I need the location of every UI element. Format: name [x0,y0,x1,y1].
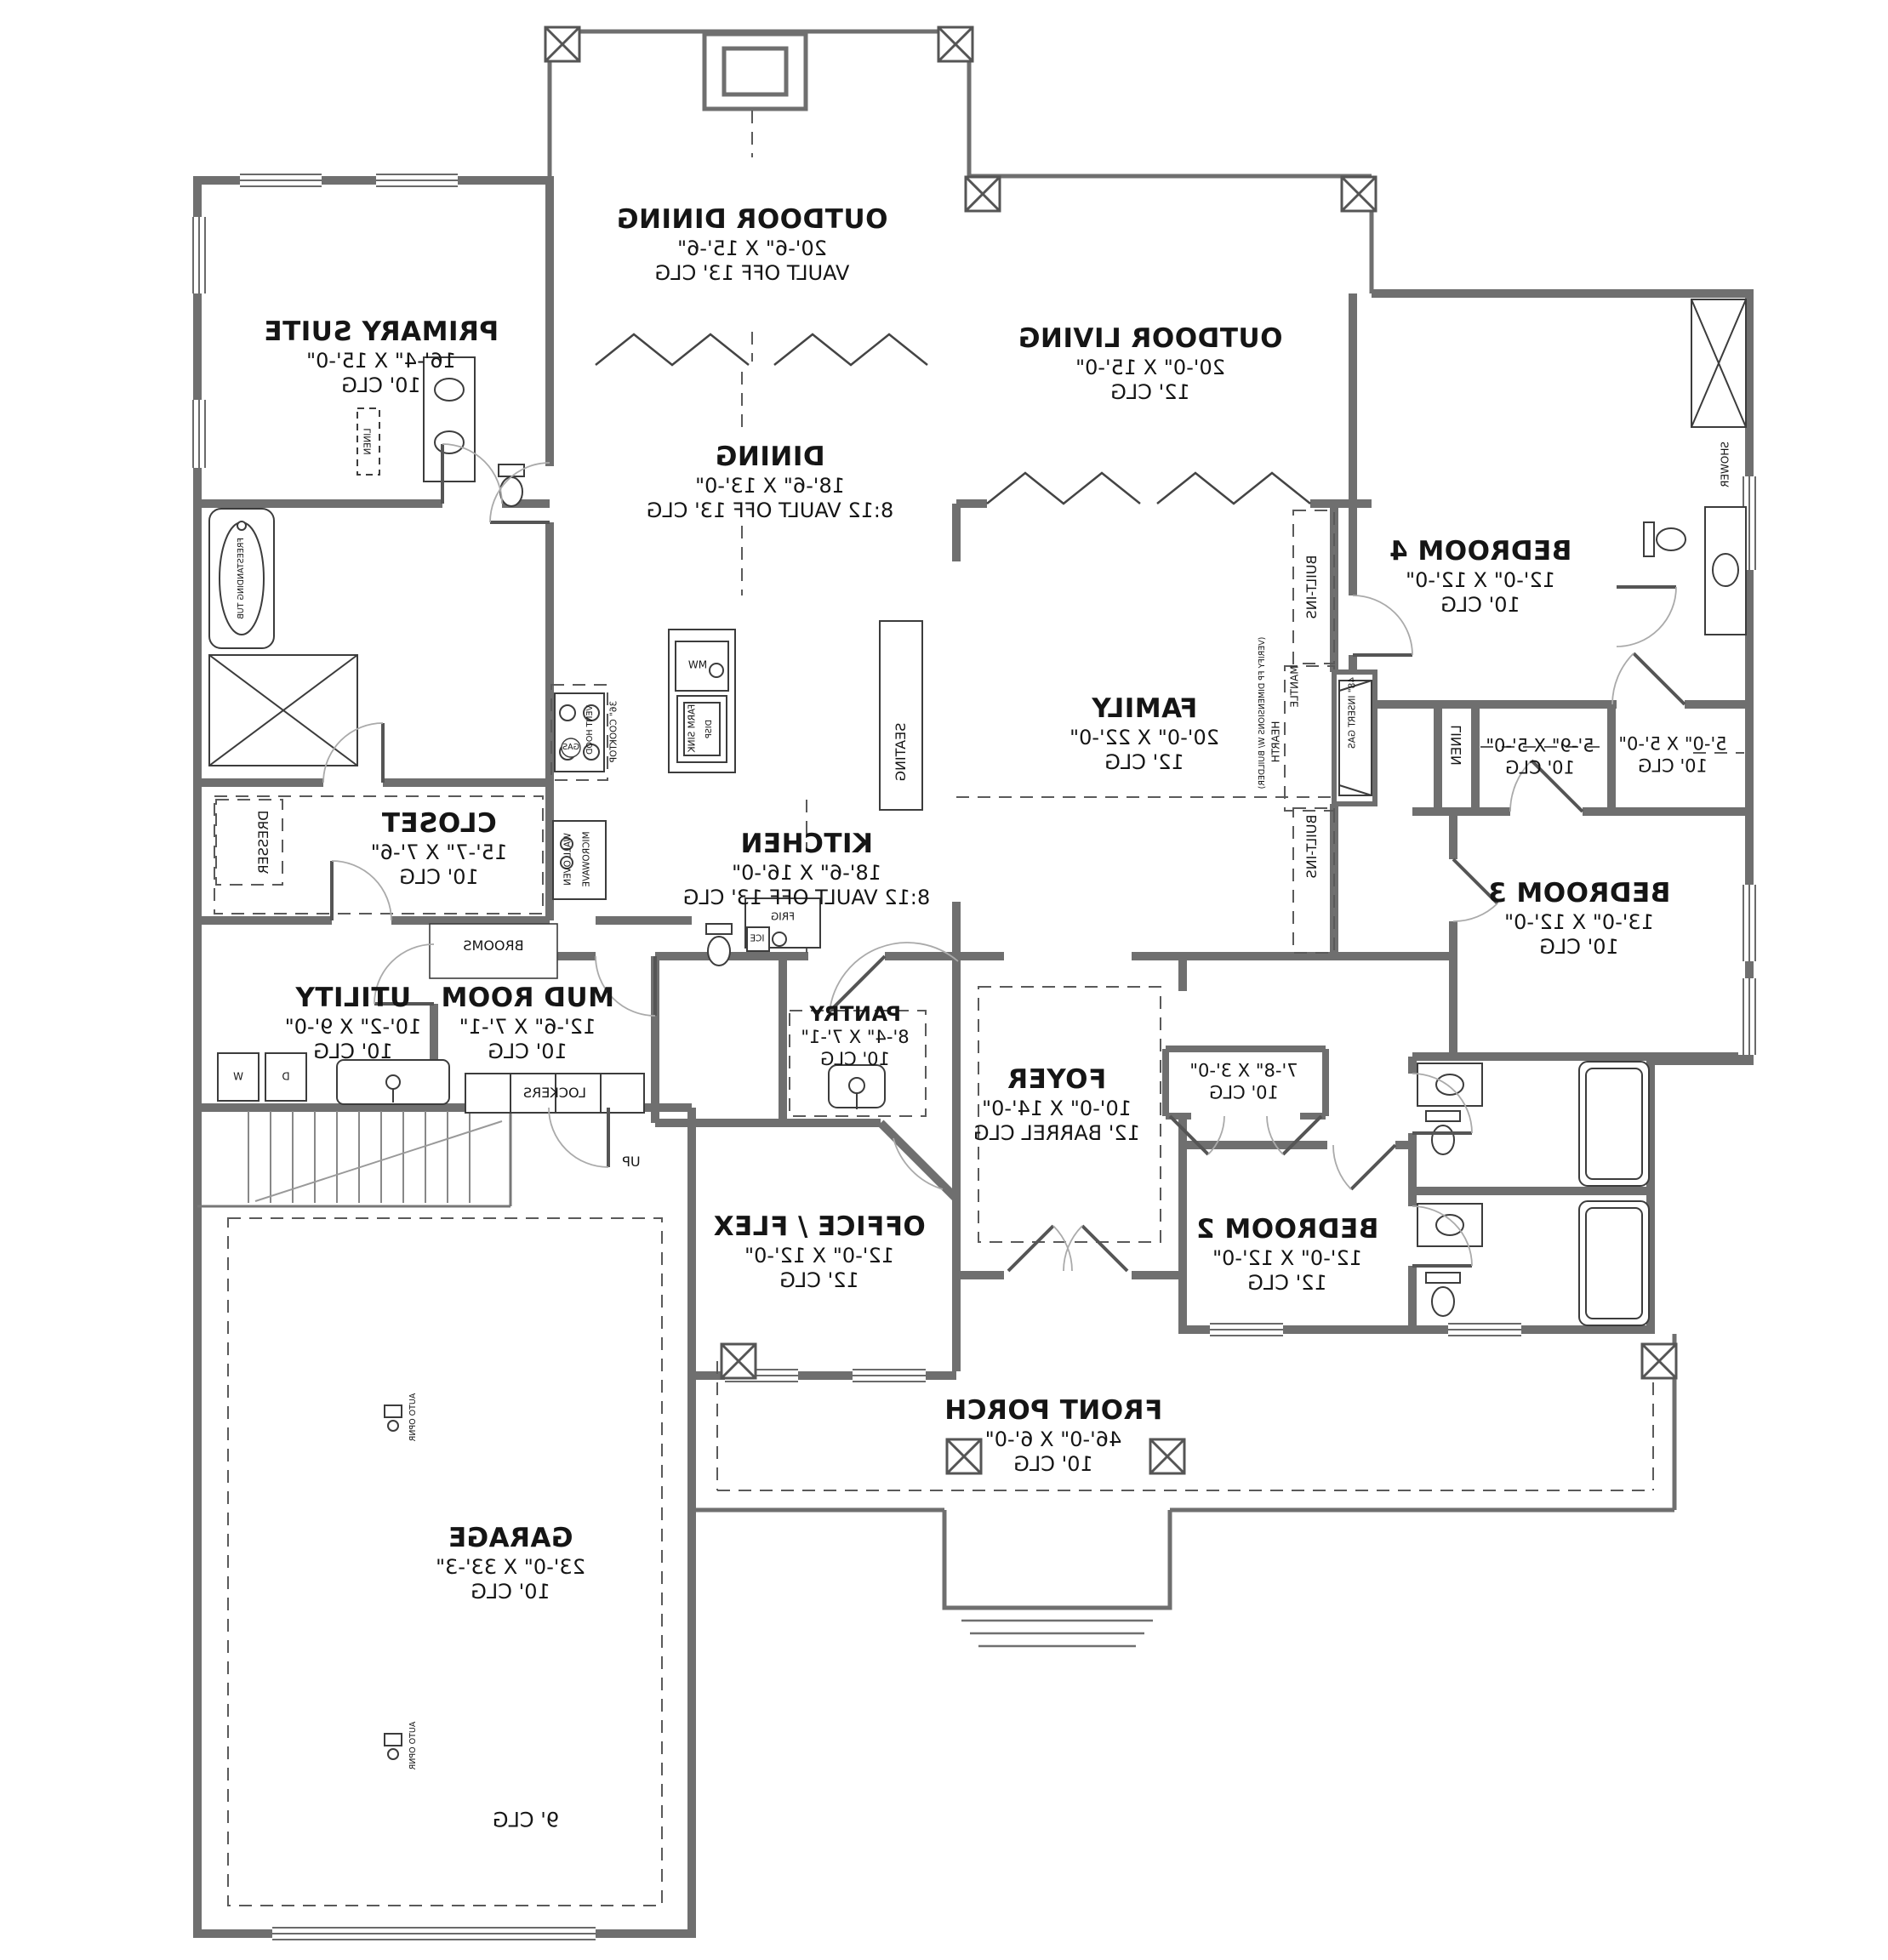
room-clg: 10' CLG [371,865,508,890]
room-dims: 8'-4" X 7'-1" [801,1027,909,1049]
room-clg: 10' CLG [264,373,499,398]
microwave-label: MICROWAVE [582,831,593,886]
farm-sink-label: FARM SINK [687,704,699,752]
linen-label: LINEN [1448,725,1465,766]
stairs-up-label: UP [622,1154,640,1171]
room-name: OUTDOOR LIVING [1018,323,1283,356]
room-label-bedroom-2: BEDROOM 2 12'-0" X 12'-0" 12' CLG [1196,1214,1379,1296]
auto-opener-label: AUTO OPNR [408,1722,419,1770]
freestanding-tub-label: FREESTANDING TUB [237,538,247,619]
vent-hood-label: VENT HOOD [585,705,596,755]
closet-dims: 7'-8" X 3'-0" [1189,1060,1298,1082]
closet-clg: 10' CLG [1486,757,1594,779]
room-clg: 12' CLG [1196,1271,1379,1296]
fp-insert-label: 48" INSERT GAS [1348,677,1359,749]
room-name: OFFICE / FLEX [713,1211,926,1244]
room-dims: 15'-7" X 7'-6" [371,840,508,865]
built-ins-label: BUILT-INS [1303,555,1320,618]
room-name: KITCHEN [683,829,930,861]
stairs [197,1108,511,1206]
closet-dims: 5'-0" X 5'-0" [1618,733,1726,755]
room-dims: 12'-0" X 12'-0" [713,1244,926,1268]
room-dims: 10'-2" X 9'-0" [285,1015,422,1040]
room-dims: 12'-6" X 7'-1" [441,1015,614,1040]
room-label-kitchen: KITCHEN 18'-6" X 16'-0" 8:12 VAULT OFF 1… [683,829,930,910]
room-label-family: FAMILY 20'-0" X 22'-0" 12' CLG [1069,693,1219,775]
room-name: PRIMARY SUITE [264,316,499,349]
shower-label: SHOWER [1720,442,1732,487]
room-clg: 10' CLG [801,1049,909,1071]
room-name: FAMILY [1069,693,1219,726]
room-label-outdoor-living: OUTDOOR LIVING 20'-0" X 15'-0" 12' CLG [1018,323,1283,405]
room-label-pantry: PANTRY 8'-4" X 7'-1" 10' CLG [801,1002,909,1070]
closet-clg: 10' CLG [1618,755,1726,778]
room-clg: 10' CLG [441,1040,614,1064]
gas-label: GAS [562,743,579,753]
cooktop-label: 36" COOKTOP [609,701,620,762]
room-clg: 8:12 VAULT OFF 13' CLG [647,499,893,523]
room-clg: 12' BARREL CLG [973,1121,1140,1146]
room-clg: 10' CLG [1389,593,1572,618]
room-name: GARAGE [436,1523,585,1555]
room-label-primary-suite: PRIMARY SUITE 16'-4" X 15'-0" 10' CLG [264,316,499,398]
room-clg: VAULT OFF 13' CLG [617,261,888,286]
room-name: OUTDOOR DINING [617,204,888,236]
closet-dims: 5'-9" X 5'-0" [1486,735,1594,757]
garage-rear-ceiling-label: 9' CLG [493,1808,559,1832]
room-name: PANTRY [801,1002,909,1027]
room-label-bedroom-3: BEDROOM 3 13'-0" X 12'-0" 10' CLG [1488,878,1671,960]
room-label-dining: DINING 18'-6" X 13'-0" 8:12 VAULT OFF 13… [647,442,893,523]
room-clg: 10' CLG [1488,935,1671,960]
room-label-bedroom-4: BEDROOM 4 12'-0" X 12'-0" 10' CLG [1389,536,1572,618]
room-clg: 10' CLG [944,1452,1162,1477]
room-label-office-flex: OFFICE / FLEX 12'-0" X 12'-0" 12' CLG [713,1211,926,1293]
room-clg: 12' CLG [1018,380,1283,405]
room-name: BEDROOM 3 [1488,878,1671,910]
room-name: FOYER [973,1064,1140,1097]
dresser-label: DRESSER [255,810,272,874]
room-clg: 12' CLG [1069,750,1219,775]
wall-oven-label: WALL OVEN [563,833,574,886]
room-clg: 10' CLG [285,1040,422,1064]
room-name: DINING [647,442,893,474]
room-dims: 12'-0" X 12'-0" [1389,568,1572,593]
dryer-label: D [282,1071,289,1084]
microwave-drawer-label: MW [688,659,707,672]
floor-plan-drawing [0,0,1888,1960]
room-label-utility: UTILITY 10'-2" X 9'-0" 10' CLG [285,983,422,1064]
hearth-label: HEARTH [1270,721,1283,763]
room-dims: 20'-6" X 15'-6" [617,236,888,261]
room-label-garage: GARAGE 23'-0" X 33'-3" 10' CLG [436,1523,585,1604]
floor-plan: PRIMARY SUITE 16'-4" X 15'-0" 10' CLG OU… [0,0,1888,1960]
room-label-mud-room: MUD ROOM 12'-6" X 7'-1" 10' CLG [441,983,614,1064]
room-dims: 12'-0" X 12'-0" [1196,1246,1379,1271]
fridge-label: FRIG [771,911,795,924]
room-label-outdoor-dining: OUTDOOR DINING 20'-6" X 15'-6" VAULT OFF… [617,204,888,286]
room-dims: 16'-4" X 15'-0" [264,349,499,373]
room-dims: 46'-0" X 6'-0" [944,1427,1162,1452]
brooms-label: BROOMS [463,937,523,954]
seating-label: SEATING [893,723,910,782]
room-name: FRONT PORCH [944,1395,1162,1427]
auto-opener-label: AUTO OPNR [408,1393,419,1442]
room-dims: 18'-6" X 13'-0" [647,474,893,499]
closet-label: 5'-9" X 5'-0" 10' CLG [1486,735,1594,778]
fp-verify-label: (VERIFY FP DIMENSIONS W/ BUILDER) [1258,637,1268,789]
room-dims: 20'-0" X 22'-0" [1069,726,1219,750]
lockers-label: LOCKERS [523,1085,586,1102]
mantle-label: MANTLE [1289,665,1302,707]
room-label-foyer: FOYER 10'-0" X 14'-0" 12' BARREL CLG [973,1064,1140,1146]
room-dims: 18'-6" X 16'-0" [683,861,930,886]
washer-label: W [233,1071,243,1084]
ice-label: ICE [750,934,764,945]
linen-label: LINEN [363,428,374,454]
closet-clg: 10' CLG [1189,1082,1298,1104]
room-clg: 10' CLG [436,1580,585,1604]
room-dims: 20'-0" X 15'-0" [1018,356,1283,380]
room-dims: 23'-0" X 33'-3" [436,1555,585,1580]
room-name: CLOSET [371,808,508,840]
room-label-front-porch: FRONT PORCH 46'-0" X 6'-0" 10' CLG [944,1395,1162,1477]
disposal-label: DISP [704,720,715,738]
room-dims: 13'-0" X 12'-0" [1488,910,1671,935]
room-name: MUD ROOM [441,983,614,1015]
room-name: BEDROOM 4 [1389,536,1572,568]
room-dims: 10'-0" X 14'-0" [973,1097,1140,1121]
closet-label: 5'-0" X 5'-0" 10' CLG [1618,733,1726,777]
room-label-closet: CLOSET 15'-7" X 7'-6" 10' CLG [371,808,508,890]
room-name: BEDROOM 2 [1196,1214,1379,1246]
closet-label: 7'-8" X 3'-0" 10' CLG [1189,1060,1298,1103]
room-clg: 8:12 VAULT OFF 13' CLG [683,886,930,910]
room-clg: 12' CLG [713,1268,926,1293]
room-name: UTILITY [285,983,422,1015]
built-ins-label: BUILT-INS [1303,814,1320,878]
